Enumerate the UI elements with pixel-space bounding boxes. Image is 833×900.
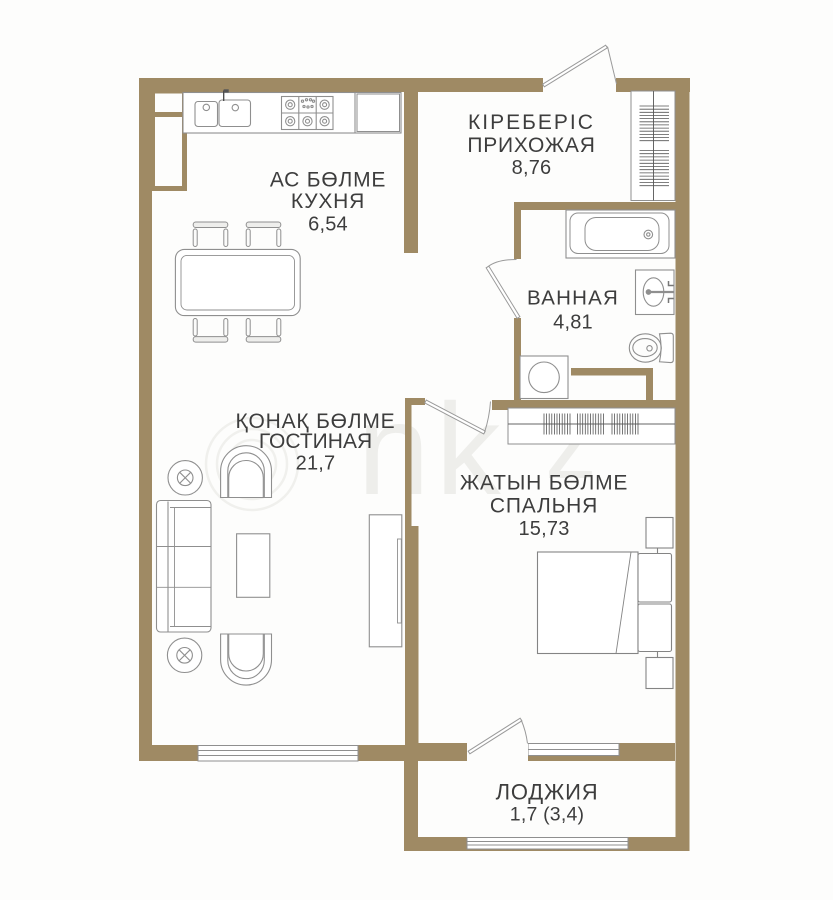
svg-text:АС БӨЛМЕ: АС БӨЛМЕ	[270, 168, 386, 191]
svg-text:ЖАТЫН БӨЛМЕ: ЖАТЫН БӨЛМЕ	[460, 471, 628, 494]
svg-text:ВАННАЯ: ВАННАЯ	[527, 286, 619, 309]
svg-text:1,7 (3,4): 1,7 (3,4)	[510, 803, 584, 825]
svg-text:21,7: 21,7	[296, 452, 336, 474]
svg-text:ЛОДЖИЯ: ЛОДЖИЯ	[496, 779, 599, 804]
svg-text:СПАЛЬНЯ: СПАЛЬНЯ	[490, 494, 598, 517]
svg-text:КУХНЯ: КУХНЯ	[291, 190, 365, 213]
svg-text:КІРЕБЕРІС: КІРЕБЕРІС	[468, 111, 595, 134]
svg-text:ПРИХОЖАЯ: ПРИХОЖАЯ	[467, 134, 595, 157]
svg-text:6,54: 6,54	[308, 213, 348, 235]
svg-text:nk: nk	[357, 376, 506, 522]
svg-text:ГОСТИНАЯ: ГОСТИНАЯ	[259, 430, 372, 453]
svg-text:15,73: 15,73	[518, 518, 569, 540]
svg-text:8,76: 8,76	[512, 157, 552, 179]
svg-text:4,81: 4,81	[553, 311, 593, 333]
